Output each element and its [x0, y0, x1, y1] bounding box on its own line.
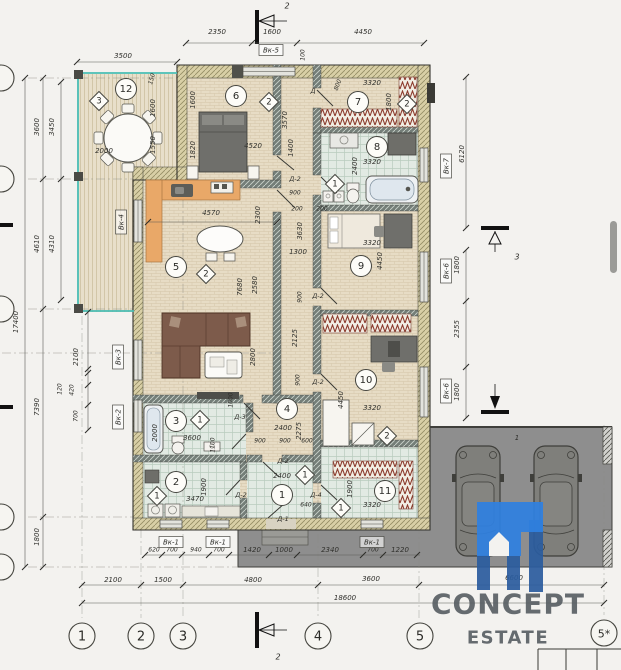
sofa-pillow: [169, 316, 181, 328]
svg-text:3: 3: [179, 630, 187, 645]
grid-axis-bubble-left: [0, 166, 14, 192]
dim-label: 900: [297, 291, 304, 303]
shower: [388, 133, 416, 155]
dim-label: 2: [284, 2, 289, 11]
dim-label: Д-2: [311, 292, 324, 300]
dim-label: Д-4: [309, 491, 322, 499]
room-number: 12: [116, 79, 137, 100]
dim-label: 200: [291, 206, 303, 213]
dining-chair: [224, 253, 235, 261]
room-number: 6: [226, 86, 247, 107]
dim-label: 4610: [33, 235, 41, 253]
dim-label: 2100: [72, 348, 80, 366]
section-cut-mark: [0, 405, 13, 409]
dim-label: 2: [275, 653, 280, 662]
dim-label: 2000: [95, 147, 113, 155]
svg-text:5: 5: [173, 262, 179, 273]
dim-label: 1300: [289, 248, 307, 256]
dim-label: 3500: [114, 52, 132, 60]
nightstand: [248, 166, 259, 179]
dim-label: 1100: [210, 437, 217, 452]
dim-label: 900: [254, 438, 266, 445]
svg-text:3: 3: [96, 97, 101, 107]
title-block: [538, 649, 621, 670]
dim-label: 2125: [291, 329, 299, 347]
dim-label: 4570: [202, 209, 220, 217]
dim-label: 1900: [200, 478, 208, 496]
dim-label: 4800: [244, 576, 262, 584]
terrace-post: [74, 304, 83, 313]
dim-label: Д-2: [288, 175, 301, 183]
dim-label: 2100: [104, 576, 122, 584]
grid-axis-bubble: 2: [128, 623, 154, 649]
room-number: 2: [166, 472, 187, 493]
svg-text:Вк-1: Вк-1: [163, 539, 179, 547]
svg-text:Вк-4: Вк-4: [118, 214, 126, 230]
dim-label: 3630: [296, 222, 304, 240]
dim-label: Д-2: [311, 378, 324, 386]
dim-label: 1: [515, 434, 519, 442]
window-tag: Вк-3: [113, 345, 124, 369]
dim-label: 900: [295, 374, 302, 386]
svg-text:2: 2: [266, 98, 271, 108]
dim-label: 6120: [458, 145, 466, 163]
sofa-pillow: [235, 316, 247, 328]
svg-text:Вк-7: Вк-7: [443, 157, 451, 174]
dim-label: 1800: [453, 256, 461, 274]
room-number: 1: [272, 485, 293, 506]
dim-label: 1600: [149, 99, 157, 117]
section-cut-mark: [0, 223, 13, 227]
svg-text:5: 5: [416, 630, 424, 645]
dim-label: 18600: [334, 594, 357, 602]
dim-label: 1900: [346, 480, 354, 498]
window-tag: Вк-7: [441, 154, 452, 178]
pillow: [224, 115, 244, 125]
window-tag: Вк-6: [441, 379, 452, 403]
grid-axis-bubble: 5: [407, 623, 433, 649]
svg-text:5*: 5*: [598, 628, 611, 641]
wall-pier: [232, 65, 243, 78]
dim-label: 120: [57, 383, 64, 395]
dim-label: 4310: [48, 235, 56, 253]
svg-text:10: 10: [360, 375, 373, 386]
svg-text:2: 2: [137, 630, 145, 645]
svg-text:7: 7: [355, 97, 361, 108]
brand-name: CONCEPT: [431, 588, 585, 621]
room-number: 7: [348, 92, 369, 113]
dim-label: 2400: [273, 472, 291, 480]
dim-label: 4450: [376, 252, 384, 270]
floor-plan-page: 3500235016004450100223360034504610431017…: [0, 0, 621, 670]
washing-machine: [330, 133, 358, 148]
dim-label: 1550: [149, 136, 157, 154]
window-tag: Вк-2: [113, 405, 124, 429]
terrace-floor: [79, 180, 133, 312]
dim-label: 620: [148, 547, 160, 554]
svg-text:1: 1: [154, 492, 159, 502]
dim-label: 1600: [189, 91, 197, 109]
dim-label: 1220: [391, 546, 409, 554]
dim-label: 2400: [274, 424, 292, 432]
nightstand: [187, 166, 198, 179]
dim-label: 3600: [183, 434, 201, 442]
desk-chair: [382, 362, 395, 372]
pillow: [330, 217, 338, 229]
section-cut-mark: [481, 226, 509, 230]
terrace-post: [74, 172, 83, 181]
dim-label: 200: [316, 206, 328, 213]
svg-text:Вк-5: Вк-5: [263, 47, 280, 55]
room-number: 11: [375, 481, 396, 502]
dim-label: 3320: [363, 404, 381, 412]
dim-label: 600: [301, 438, 313, 445]
dim-label: 1420: [243, 546, 261, 554]
svg-text:1: 1: [338, 504, 343, 514]
svg-text:Вк-1: Вк-1: [364, 539, 380, 547]
svg-text:Вк-3: Вк-3: [115, 349, 123, 365]
desk: [384, 214, 412, 248]
desk-chair: [374, 226, 384, 237]
garage-pillar: [603, 427, 612, 464]
grid-axis-bubble: 1: [69, 623, 95, 649]
dim-label: 3600: [33, 118, 41, 136]
floor-plan-drawing: 3500235016004450100223360034504610431017…: [0, 0, 621, 670]
dim-label: 1400: [287, 139, 295, 157]
dim-label: 3570: [281, 111, 289, 129]
dim-label: 900: [279, 438, 291, 445]
dim-label: 2355: [453, 320, 461, 338]
grid-axis-bubble: 4: [305, 623, 331, 649]
svg-text:Вк-6: Вк-6: [443, 382, 451, 399]
window-tag: Вк-1: [360, 537, 384, 548]
dim-label: 2000: [151, 424, 159, 442]
dim-label: 940: [190, 547, 202, 554]
svg-text:4: 4: [284, 404, 290, 415]
svg-text:1: 1: [279, 490, 285, 501]
room-number: 3: [166, 411, 187, 432]
svg-text:1: 1: [302, 471, 307, 481]
dining-table: [197, 226, 243, 252]
window-tag: Вк-6: [441, 259, 452, 283]
vent-block: [427, 83, 435, 103]
dim-label: 2340: [321, 546, 339, 554]
svg-text:9: 9: [358, 261, 364, 272]
svg-text:1: 1: [197, 416, 202, 426]
logo-house-icon: [477, 502, 543, 592]
scrollbar-thumb[interactable]: [610, 221, 617, 273]
washbasin: [323, 191, 333, 202]
dim-label: Д-2: [276, 457, 289, 465]
svg-text:2: 2: [404, 100, 409, 110]
svg-text:4: 4: [314, 630, 322, 645]
boiler: [145, 470, 159, 483]
entrance-porch: [262, 530, 308, 545]
dim-label: 3320: [363, 239, 381, 247]
wardrobe: [323, 400, 349, 446]
window-tag: Вк-1: [206, 537, 230, 548]
svg-text:Вк-1: Вк-1: [210, 539, 226, 547]
dim-label: Д-1: [276, 515, 289, 523]
dim-label: 1000: [275, 546, 293, 554]
dim-label: 1800: [453, 383, 461, 401]
svg-text:Вк-6: Вк-6: [443, 262, 451, 279]
room-number: 4: [277, 399, 298, 420]
dim-label: 420: [69, 384, 76, 396]
svg-text:2: 2: [384, 432, 389, 442]
dim-label: 3320: [363, 79, 381, 87]
dim-label: 3320: [363, 158, 381, 166]
dim-label: 4520: [244, 142, 262, 150]
dim-label: 640: [300, 502, 312, 509]
grid-axis-bubble-left: [0, 504, 14, 530]
dim-label: 1500: [154, 576, 172, 584]
window-tag: Вк-5: [259, 45, 283, 56]
room-number: 8: [367, 137, 388, 158]
dim-label: Д-2: [234, 491, 247, 499]
svg-text:2: 2: [173, 477, 179, 488]
brand-subtitle: ESTATE: [467, 628, 549, 649]
room-number: 5: [166, 257, 187, 278]
dim-label: 1000: [228, 392, 235, 407]
grid-axis-bubble: 5*: [591, 620, 617, 646]
dim-label: Д-3: [233, 413, 246, 421]
dim-label: 4450: [337, 391, 345, 409]
svg-text:1: 1: [78, 630, 86, 645]
dim-label: 2580: [251, 276, 259, 294]
grid-axis-bubble: 3: [170, 623, 196, 649]
svg-text:11: 11: [379, 486, 392, 497]
dim-label: 3600: [362, 575, 380, 583]
window-tag: Вк-1: [159, 537, 183, 548]
pillow: [330, 231, 338, 243]
svg-text:6: 6: [233, 91, 239, 102]
room-number: 9: [351, 256, 372, 277]
dim-label: 1800: [33, 528, 41, 546]
window-tag: Вк-4: [116, 210, 127, 234]
dim-label: 3320: [363, 501, 381, 509]
dining-chair: [206, 253, 217, 261]
dim-label: 3: [514, 253, 519, 262]
dim-label: 3450: [48, 118, 56, 136]
dim-label: 1600: [263, 28, 281, 36]
section-cut-mark: [255, 10, 259, 44]
dim-label: 2800: [249, 348, 257, 366]
dim-label: 900: [289, 190, 301, 197]
dim-label: Д: [309, 87, 315, 95]
dim-label: 2300: [254, 206, 262, 224]
grid-axis-bubble-left: [0, 65, 14, 91]
garage-pillar: [603, 530, 612, 567]
pillow: [202, 115, 222, 125]
terrace-post: [74, 70, 83, 79]
svg-text:1: 1: [332, 180, 337, 190]
svg-text:12: 12: [120, 84, 133, 95]
svg-text:2: 2: [203, 270, 208, 280]
grid-axis-bubble-left: [0, 554, 14, 580]
dim-label: 1820: [189, 141, 197, 159]
dim-label: 1800: [385, 93, 393, 111]
dim-label: 7390: [33, 398, 41, 416]
room-number: 10: [356, 370, 377, 391]
svg-text:Вк-2: Вк-2: [115, 408, 123, 425]
svg-text:3: 3: [173, 416, 179, 427]
dim-label: 2400: [351, 157, 359, 175]
svg-text:8: 8: [374, 142, 380, 153]
section-cut-mark: [481, 410, 509, 414]
dim-label: 4450: [354, 28, 372, 36]
dim-label: 2350: [208, 28, 226, 36]
dim-label: 100: [300, 49, 307, 61]
dim-label: 700: [73, 410, 80, 422]
laundry-sink: [205, 507, 218, 516]
dim-label: 7680: [236, 278, 244, 296]
